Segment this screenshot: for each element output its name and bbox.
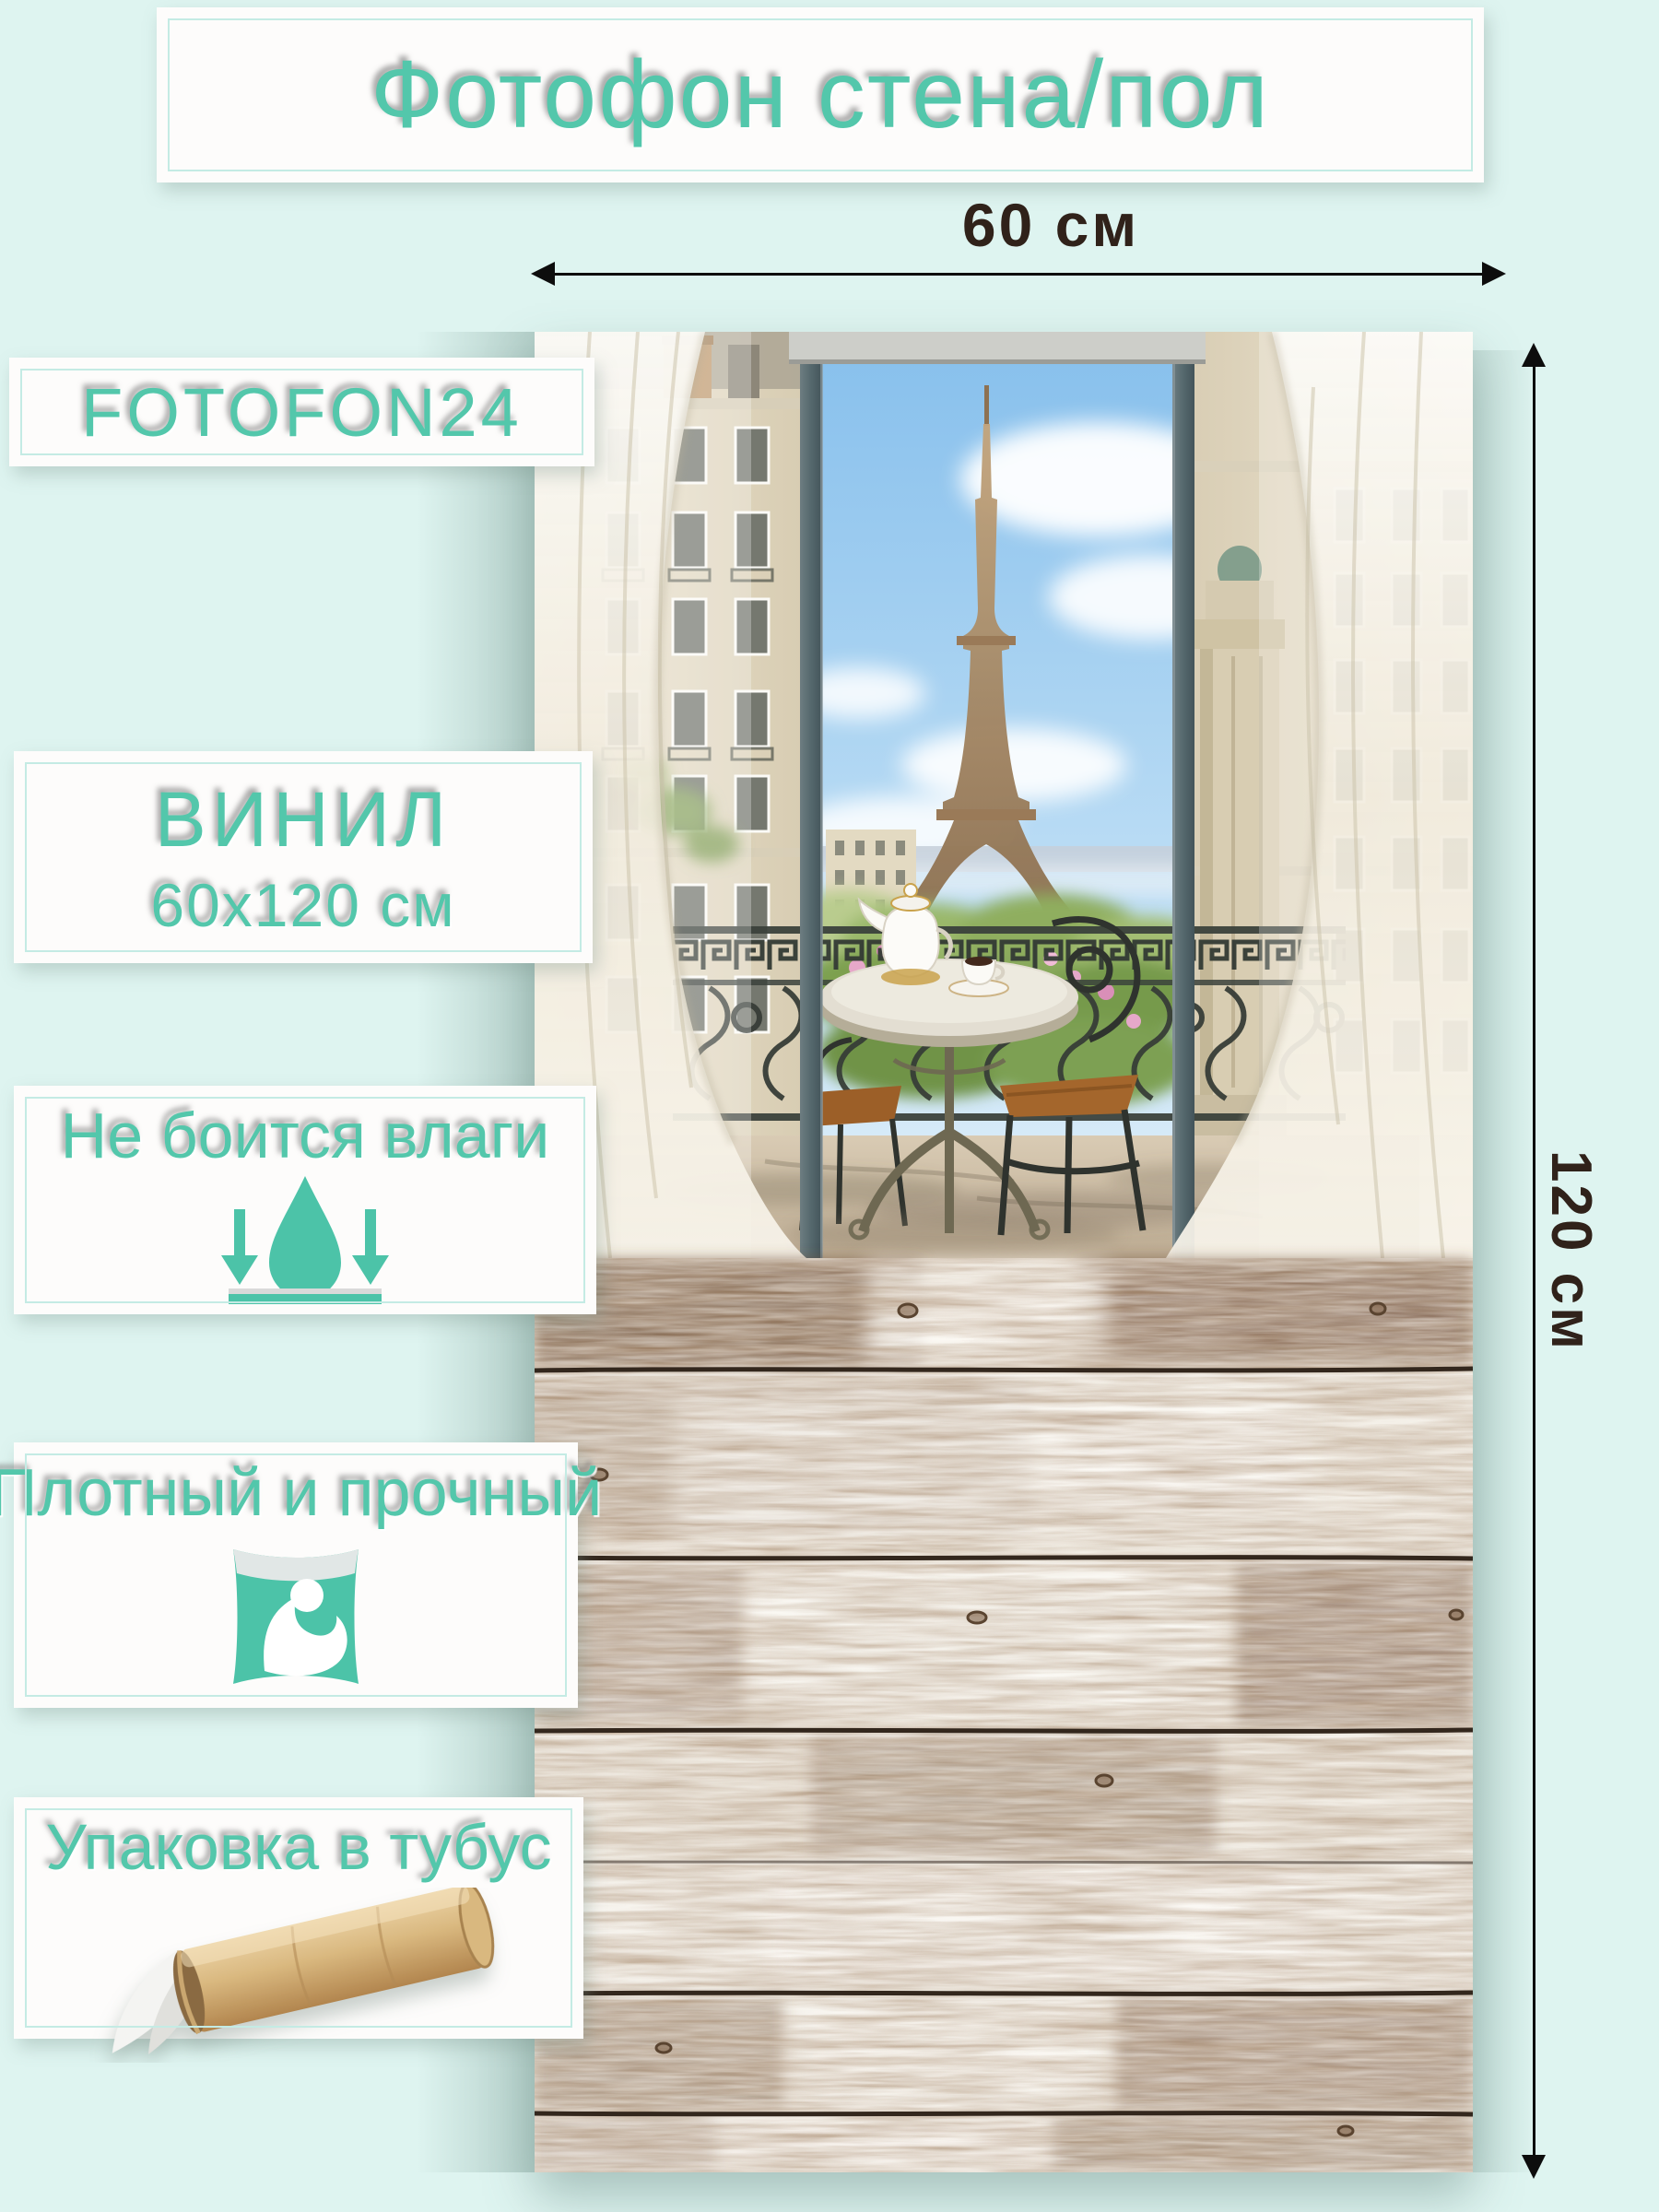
- arrow-down-icon: [1522, 2155, 1546, 2179]
- photo-right-shadow: [1473, 350, 1537, 2172]
- height-dimension-arrow: [1533, 348, 1535, 2157]
- arrow-right-icon: [1482, 262, 1506, 286]
- arrow-up-icon: [1522, 343, 1546, 367]
- material-box: ВИНИЛ 60х120 см: [14, 751, 593, 963]
- feature-durable-label: Плотный и прочный: [0, 1455, 602, 1531]
- material-size: 60х120 см: [150, 870, 455, 940]
- feature-tube-box: Упаковка в тубус: [14, 1797, 583, 2039]
- balcony-scene: [535, 332, 1473, 1258]
- cardboard-tube-icon: [59, 1888, 538, 2067]
- feature-tube-label: Упаковка в тубус: [45, 1810, 551, 1884]
- brand-label: FOTOFON24: [81, 373, 523, 452]
- product-photo: [535, 332, 1473, 2172]
- product-card: 60 см 120 см Фотофон стена/пол FOTOFON24…: [0, 0, 1659, 2212]
- width-dimension-label: 60 см: [829, 190, 1272, 260]
- water-drop-arrows-icon: [208, 1172, 402, 1315]
- window-lintel: [789, 332, 1206, 364]
- feature-moisture-box: Не боится влаги: [14, 1086, 596, 1314]
- width-dimension-arrow: [546, 273, 1484, 276]
- brand-box: FOTOFON24: [9, 358, 594, 466]
- page-title: Фотофон стена/пол: [371, 41, 1270, 150]
- material-name: ВИНИЛ: [155, 775, 453, 865]
- feature-moisture-label: Не боится влаги: [61, 1099, 550, 1172]
- height-dimension-label: 120 см: [1538, 1150, 1604, 1352]
- window-frame-left: [800, 332, 822, 1258]
- title-banner: Фотофон стена/пол: [157, 7, 1484, 182]
- strength-pillow-icon: [204, 1531, 388, 1706]
- wood-planks: [535, 1258, 1473, 2172]
- window-frame-right: [1172, 332, 1194, 1258]
- arrow-left-icon: [531, 262, 555, 286]
- feature-durable-box: Плотный и прочный: [14, 1442, 578, 1708]
